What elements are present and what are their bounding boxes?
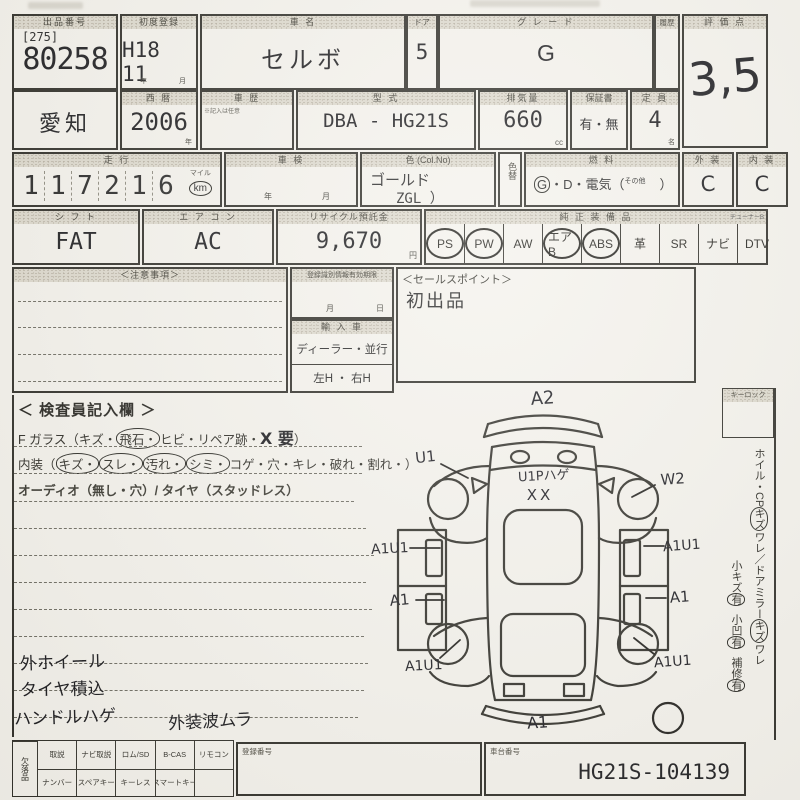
- equipment-item-sunroof: SR: [659, 224, 698, 263]
- fuel-options: G・D・電気（その他）: [534, 174, 673, 193]
- history-flag-label: 履歴: [656, 16, 678, 29]
- displacement-label: 排気量: [480, 92, 566, 105]
- left-mirror: [472, 478, 487, 493]
- mileage-box: 走 行 1 1 7 2 1 6 マイル km: [12, 152, 222, 207]
- keylock-label: キーロック: [723, 389, 773, 402]
- equipment-item-abs: ABS: [581, 224, 620, 263]
- registration-number-box: 登録番号: [236, 742, 482, 796]
- recycle-fee-unit: 円: [409, 250, 417, 261]
- damage-code: W2: [660, 469, 686, 489]
- shift-value: FAT: [14, 229, 138, 255]
- import-label: 輸 入 車: [292, 321, 392, 334]
- glass-open-paren: （: [66, 433, 79, 447]
- damage-code: U1: [414, 447, 436, 467]
- top-smudge: [28, 2, 83, 9]
- sidebar-term: ワレ: [753, 531, 765, 553]
- glass-label: F ガラス: [18, 433, 66, 447]
- sidebar-term: 補修: [726, 657, 746, 679]
- car-name: セルボ: [202, 40, 404, 75]
- missing-item: スペアキー: [76, 769, 115, 797]
- displacement-box: 排気量 660 cc: [478, 90, 568, 150]
- interior-label: 内装: [18, 458, 43, 472]
- grade-box: グ レ ー ド G: [438, 14, 654, 90]
- caution-box: ＜注意事項＞: [12, 267, 288, 393]
- aircon-box: エ ア コ ン AC: [142, 209, 274, 265]
- interior-option: キレ: [292, 454, 330, 473]
- equipment-item-dtv: DTV: [737, 224, 776, 263]
- mileage-digits: 1 1 7 2 1 6: [18, 171, 179, 201]
- warranty-box: 保証書 有・無: [570, 90, 628, 150]
- damage-code: A2: [530, 388, 555, 410]
- shaken-box: 車 検 年 月: [224, 152, 358, 207]
- damage-code: A1: [669, 587, 690, 606]
- chassis-number-value: HG21S-104139: [486, 760, 744, 784]
- equipment-row: PS PW AW エアB ABS 革 SR ナビ DTV: [426, 224, 766, 263]
- interior-option: コゲ: [230, 454, 268, 473]
- sidebar-term: 有: [727, 593, 745, 606]
- registration-id-label: 登録識別情報有効期限: [292, 269, 392, 282]
- note-handle: ハンドルハゲ: [14, 701, 117, 730]
- door-label: ドア: [408, 16, 436, 29]
- sidebar-wheel-line: ホイル・CPキズワレ／ドアミラーキズワレ: [748, 448, 770, 665]
- capacity-unit: 名: [668, 137, 675, 147]
- interior-option: 穴: [267, 454, 292, 473]
- shift-box: シ フ ト FAT: [12, 209, 140, 265]
- first-registration-label: 初度登録: [122, 16, 196, 29]
- rear-right-wheel: [618, 624, 658, 664]
- score-label: 評 価 点: [684, 16, 766, 29]
- fuel-gasoline: G: [534, 176, 550, 193]
- shaken-month-unit: 月: [322, 191, 330, 202]
- note-tires: タイヤ積込: [20, 674, 105, 700]
- damage-code: A1U1: [371, 540, 409, 558]
- car-history-label: 車 歴: [202, 92, 292, 105]
- door-value: 5: [408, 40, 436, 64]
- car-history-box: 車 歴 ※記入は任意: [200, 90, 294, 150]
- car-name-box: 車 名 セルボ: [200, 14, 406, 90]
- damage-code: U1Pハゲ: [518, 468, 570, 486]
- import-option-dealer: ディーラー・並行: [292, 334, 392, 365]
- note-wheels: 外ホイール: [20, 647, 106, 675]
- equipment-item-airbag: エアB: [542, 224, 581, 263]
- model-code-box: 型 式 DBA - HG21S: [296, 90, 476, 150]
- score-value: 3,5: [682, 47, 768, 108]
- mileage-units: マイル km: [189, 170, 212, 195]
- right-rule: [774, 388, 776, 740]
- shaken-label: 車 検: [226, 154, 356, 167]
- keylock-box: キーロック: [722, 388, 774, 438]
- sidebar-term: 有: [727, 636, 745, 649]
- mileage-digit: 1: [126, 171, 153, 201]
- fuel-box: 燃 料 G・D・電気（その他）: [524, 152, 680, 207]
- front-bumper-line: [488, 416, 598, 425]
- equipment-box: 純 正 装 備 品 チューナーB PS PW AW エアB ABS 革 SR ナ…: [424, 209, 768, 265]
- aircon-label: エ ア コ ン: [144, 211, 272, 224]
- warranty-value: 有・無: [572, 114, 626, 133]
- missing-item: ナンバー: [37, 769, 76, 797]
- mileage-digit: 1: [18, 171, 45, 201]
- fuel-close-paren: ）: [660, 177, 673, 192]
- damage-code: A1U1: [662, 537, 700, 556]
- grade-label: グ レ ー ド: [440, 16, 652, 29]
- equipment-item-pw: PW: [464, 224, 503, 263]
- equipment-item-navi: ナビ: [698, 224, 737, 263]
- prefecture-box: 愛知: [12, 90, 118, 150]
- sidebar-term: キズ: [750, 507, 768, 531]
- sidebar-term: ドアミラー: [753, 564, 765, 619]
- interior-option: キズ: [56, 453, 100, 474]
- missing-item: B-CAS: [155, 741, 194, 769]
- equipment-label: 純 正 装 備 品 チューナーB: [426, 211, 766, 224]
- mileage-unit-mile: マイル: [189, 170, 212, 177]
- mileage-digit: 7: [72, 171, 99, 201]
- car-history-note: ※記入は任意: [204, 106, 240, 115]
- score-box: 評 価 点 3,5: [682, 14, 768, 148]
- sales-point-value: 初出品: [406, 287, 466, 313]
- lot-number: 80258: [14, 42, 116, 77]
- chassis-number-box: 車台番号 HG21S-104139: [484, 742, 746, 796]
- sidebar-term: 小キズ: [730, 560, 742, 593]
- mileage-digit: 2: [99, 171, 126, 201]
- right-mirror: [599, 478, 614, 493]
- equipment-item-leather: 革: [620, 224, 659, 263]
- equipment-item-ps: PS: [426, 224, 464, 263]
- first-reg-year-unit: 年: [140, 76, 147, 86]
- first-reg-month-unit: 月: [179, 76, 186, 86]
- damage-code: XX: [527, 486, 554, 504]
- prefecture-value: 愛知: [14, 106, 116, 138]
- color-code: ZGL ）: [396, 188, 444, 208]
- registration-id-box: 登録識別情報有効期限 月 日: [290, 267, 394, 319]
- color-value: ゴールド: [370, 169, 430, 190]
- mileage-digit: 6: [153, 171, 179, 201]
- glass-close-paren: ）: [294, 433, 307, 447]
- shaken-year-unit: 年: [264, 191, 272, 202]
- audio-line: オーディオ（無し・穴）/ タイヤ（スタッドレス）: [18, 480, 299, 499]
- sales-point-label: ＜セールスポイント＞: [402, 271, 512, 287]
- capacity-value: 4: [632, 108, 678, 133]
- auction-sheet: 出品番号 [275] 80258 初度登録 H18 11 年 月 車 名 セルボ…: [0, 0, 800, 800]
- sidebar-term: 有: [727, 679, 745, 692]
- missing-item: スマートキー: [155, 769, 194, 797]
- missing-item: 取説: [37, 741, 76, 769]
- windshield: [504, 510, 582, 584]
- interior-option: スレ: [99, 453, 143, 474]
- interior-option: シミ: [186, 453, 230, 474]
- missing-items-table: 欠落品 取説 ナビ取説 ロム/SD B-CAS リモコン ナンバー スペアキー …: [12, 740, 234, 797]
- inspector-title: ＜ 検査員記入欄 ＞: [18, 399, 156, 420]
- missing-item: リモコン: [194, 741, 233, 769]
- mileage-unit-km: km: [189, 181, 212, 196]
- shift-label: シ フ ト: [14, 211, 138, 224]
- year-label: 西 暦: [122, 92, 196, 105]
- aircon-value: AC: [144, 229, 272, 255]
- equipment-item-aw: AW: [503, 224, 542, 263]
- top-smudge: [470, 0, 600, 7]
- color-change-box: 色替: [498, 152, 522, 207]
- capacity-label: 定 員: [632, 92, 678, 105]
- year-value: 2006: [122, 108, 196, 136]
- note-exterior-wave: 外装波ムラ: [167, 705, 252, 734]
- sales-point-box: ＜セールスポイント＞ 初出品: [396, 267, 696, 383]
- interior-line: 内装（キズスレ汚れシミコゲ穴キレ破れ割れ）: [18, 453, 417, 474]
- equipment-note: チューナーB: [730, 212, 764, 224]
- car-damage-diagram: A2 U1 W2 U1Pハゲ XX A1U1 A1U1 A1 A1 A1U1 A…: [368, 388, 700, 740]
- recycle-fee-value: 9,670: [278, 229, 420, 254]
- registration-id-month: 月: [326, 303, 334, 314]
- interior-option: 破れ: [330, 454, 368, 473]
- interior-grade-value: C: [737, 171, 786, 197]
- year-box: 西 暦 2006 年: [120, 90, 198, 150]
- fuel-rest: ・D・電気（: [550, 177, 624, 192]
- displacement-unit: cc: [555, 138, 563, 147]
- sidebar-small-damage-line: 小キズ有小凹有補修有: [726, 560, 746, 692]
- model-code-value: DBA - HG21S: [298, 110, 474, 132]
- equipment-label-text: 純 正 装 備 品: [559, 212, 632, 222]
- grade-value: G: [440, 40, 652, 67]
- sidebar-term: ワレ: [753, 643, 765, 665]
- rear-window: [501, 614, 585, 676]
- warranty-label: 保証書: [572, 92, 626, 105]
- interior-open-paren: （: [43, 458, 56, 472]
- missing-item: キーレス: [115, 769, 154, 797]
- damage-code: A1: [526, 712, 548, 732]
- missing-items-label: 欠落品: [13, 741, 37, 796]
- damage-code: A1U1: [653, 653, 692, 672]
- fuel-label: 燃 料: [526, 154, 678, 167]
- registration-id-day: 日: [376, 303, 384, 314]
- door-box: ドア 5: [406, 14, 438, 90]
- displacement-value: 660: [480, 108, 566, 133]
- history-box: 履歴: [654, 14, 680, 90]
- import-box: 輸 入 車 ディーラー・並行 左H ・ 右H: [290, 319, 394, 393]
- lot-number-box: 出品番号 [275] 80258: [12, 14, 118, 90]
- sidebar-term: 小凹: [726, 614, 746, 636]
- car-name-label: 車 名: [202, 16, 404, 29]
- registration-number-label: 登録番号: [242, 746, 272, 757]
- front-right-wheel: [618, 479, 658, 519]
- mileage-label: 走 行: [14, 154, 220, 167]
- first-registration-box: 初度登録 H18 11 年 月: [120, 14, 198, 90]
- capacity-box: 定 員 4 名: [630, 90, 680, 150]
- color-label: 色 (Col.No): [362, 154, 494, 167]
- lot-number-label: 出品番号: [14, 16, 116, 29]
- missing-item: [194, 769, 233, 797]
- caution-label: ＜注意事項＞: [14, 269, 286, 282]
- chassis-number-label: 車台番号: [490, 746, 520, 757]
- fuel-other: その他: [625, 178, 646, 185]
- missing-item: ロム/SD: [115, 741, 154, 769]
- model-code-label: 型 式: [298, 92, 474, 105]
- missing-item: ナビ取説: [76, 741, 115, 769]
- exterior-grade-label: 外 装: [684, 154, 732, 167]
- sidebar-term: ホイル・CP: [753, 448, 765, 507]
- front-left-wheel: [428, 479, 468, 519]
- color-box: 色 (Col.No) ゴールド ZGL ）: [360, 152, 496, 207]
- color-change-label: 色替: [506, 162, 519, 180]
- recycle-fee-box: リサイクル預託金 9,670 円: [276, 209, 422, 265]
- year-unit: 年: [185, 137, 192, 147]
- exterior-grade-box: 外 装 C: [682, 152, 734, 207]
- sidebar-term: キズ: [750, 619, 768, 643]
- empty-mark-circle: [653, 703, 683, 733]
- interior-option: 汚れ: [143, 453, 187, 474]
- damage-code: A1: [389, 590, 410, 610]
- sidebar-term: ／: [753, 553, 765, 564]
- interior-grade-box: 内 装 C: [736, 152, 788, 207]
- exterior-grade-value: C: [683, 170, 733, 197]
- interior-grade-label: 内 装: [738, 154, 786, 167]
- mileage-digit: 1: [45, 171, 72, 201]
- damage-code: A1U1: [405, 657, 443, 675]
- recycle-fee-label: リサイクル預託金: [278, 211, 420, 224]
